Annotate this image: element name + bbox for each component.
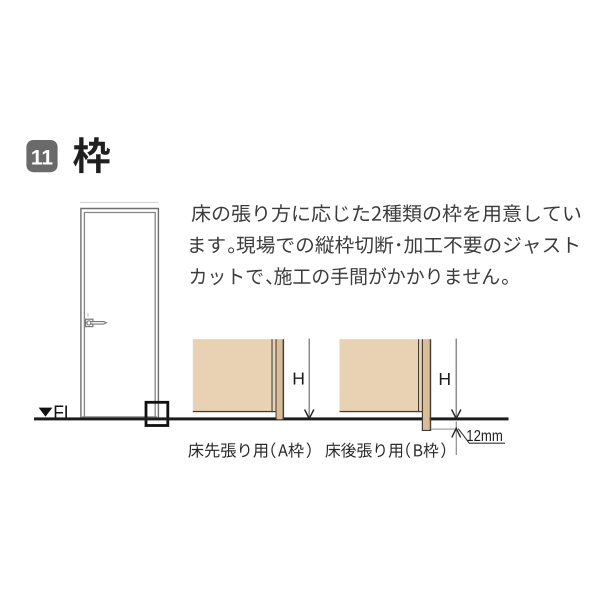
svg-text:12mm: 12mm <box>466 428 503 445</box>
svg-text:H: H <box>292 369 305 389</box>
svg-text:FL: FL <box>53 403 73 424</box>
svg-text:11: 11 <box>31 146 54 169</box>
svg-text:H: H <box>438 369 451 389</box>
